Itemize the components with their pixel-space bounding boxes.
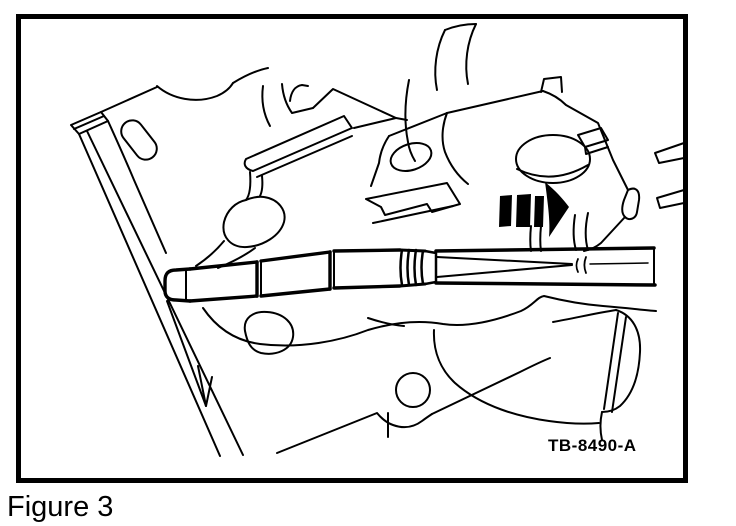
arrow-dash-2 xyxy=(516,194,531,227)
driver-shaft-bottom xyxy=(436,283,655,285)
tool-part-number-label: TB-8490-A xyxy=(548,436,637,456)
service-manual-figure-page: TB-8490-A Figure 3 xyxy=(0,0,736,526)
figure-caption: Figure 3 xyxy=(7,491,113,524)
arrow-dash-1 xyxy=(499,195,512,227)
arrow-dash-3 xyxy=(534,196,544,227)
